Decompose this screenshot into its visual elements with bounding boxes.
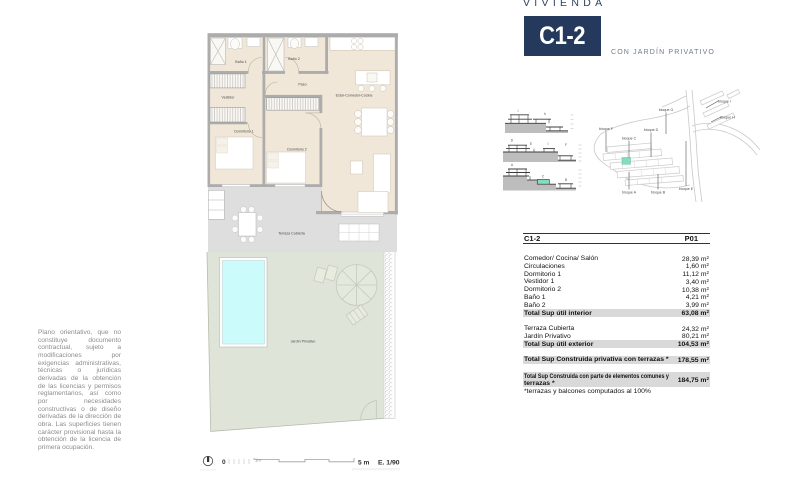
svg-text:0: 0 xyxy=(222,459,226,466)
svg-text:i: i xyxy=(518,109,519,113)
svg-text:Dormitorio 1: Dormitorio 1 xyxy=(234,130,254,134)
svg-text:F: F xyxy=(565,143,567,147)
svg-text:Baño 2: Baño 2 xyxy=(288,57,299,61)
svg-text:D: D xyxy=(511,139,514,143)
svg-text:5 m: 5 m xyxy=(358,460,369,467)
svg-text:bloque A: bloque A xyxy=(622,191,637,195)
svg-text:bloque G: bloque G xyxy=(659,108,674,112)
svg-text:C: C xyxy=(542,175,545,179)
svg-text:Dormitorio 2: Dormitorio 2 xyxy=(287,148,307,152)
svg-text:bloque I: bloque I xyxy=(718,100,731,104)
svg-text:1m: 1m xyxy=(255,458,261,463)
svg-text:E. 1/90: E. 1/90 xyxy=(378,460,400,467)
svg-text:A: A xyxy=(511,163,514,167)
svg-text:bloque B: bloque B xyxy=(651,191,666,195)
svg-text:bloque D: bloque D xyxy=(644,128,659,132)
svg-text:Estar-Comedor-Cocina: Estar-Comedor-Cocina xyxy=(336,94,373,98)
svg-text:Baño 1: Baño 1 xyxy=(235,60,246,64)
svg-text:Paso: Paso xyxy=(298,83,306,87)
svg-text:h: h xyxy=(544,112,546,116)
svg-text:bloque C: bloque C xyxy=(622,137,637,141)
svg-text:Terraza Cubierta: Terraza Cubierta xyxy=(278,232,305,236)
svg-text:E: E xyxy=(530,142,533,146)
svg-text:Jardín Privativo: Jardín Privativo xyxy=(291,340,316,344)
svg-text:I: I xyxy=(548,142,549,146)
svg-text:bloque F: bloque F xyxy=(599,127,614,131)
svg-text:bloque E: bloque E xyxy=(679,187,694,191)
svg-text:Vestidor: Vestidor xyxy=(222,96,236,100)
svg-text:B: B xyxy=(565,178,568,182)
svg-text:bloque H: bloque H xyxy=(720,116,735,120)
